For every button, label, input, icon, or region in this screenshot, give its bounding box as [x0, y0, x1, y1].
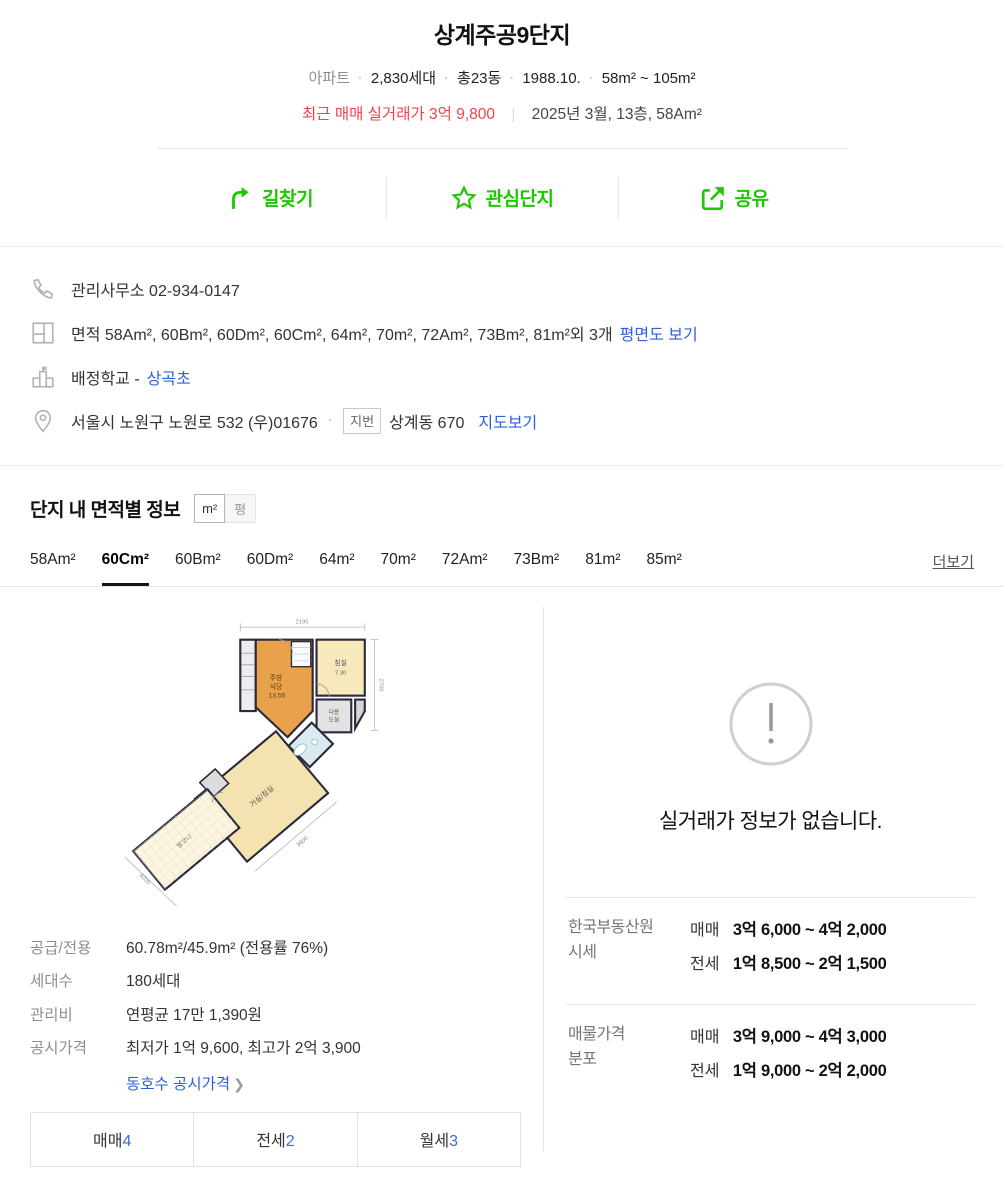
svg-text:주방 식당 13.5: 주방 식당 13.55 [268, 673, 285, 699]
detail-label: 관리비 [30, 1005, 126, 1027]
detail-label: 공시가격 [30, 1038, 126, 1060]
price-row: 매매 3억 9,000 ~ 4억 3,000 [690, 1023, 886, 1047]
no-deal-empty-state: 실거래가 정보가 없습니다. [566, 607, 975, 835]
detail-row: 공급/전용 60.78m²/45.9m² (전용률 76%) [30, 938, 521, 960]
svg-text:3600: 3600 [295, 836, 309, 849]
complex-info-box: 관리사무소 02-934-0147 면적 58Am², 60Bm², 60Dm²… [0, 247, 1004, 466]
unit-price-link[interactable]: 동호수 공시가격 [126, 1076, 230, 1093]
jibun-address: 상계동 670 [389, 409, 464, 433]
section-title: 단지 내 면적별 정보 [30, 495, 180, 522]
area-tab[interactable]: 70m² [381, 547, 416, 586]
listing-button-매매[interactable]: 매매4 [30, 1112, 194, 1167]
area-detail-table: 공급/전용 60.78m²/45.9m² (전용률 76%) 세대수 180세대… [30, 938, 521, 1094]
separator-dot: · [358, 70, 363, 87]
action-bar: 길찾기 관심단지 공유 [0, 149, 1004, 247]
recent-deal-line: 최근 매매 실거래가 3억 9,800 | 2025년 3월, 13층, 58A… [0, 102, 1004, 124]
no-deal-message: 실거래가 정보가 없습니다. [566, 805, 975, 835]
favorite-complex-button[interactable]: 관심단지 [387, 184, 618, 211]
phone-icon [30, 276, 56, 302]
price-range: 3억 6,000 ~ 4억 2,000 [733, 921, 887, 939]
share-button[interactable]: 공유 [619, 184, 850, 211]
info-row-office: 관리사무소 02-934-0147 [30, 267, 974, 311]
floorplan-icon [30, 320, 56, 346]
separator-bar: | [511, 106, 515, 123]
price-section-label: 한국부동산원시세 [568, 916, 690, 984]
school-icon [30, 364, 56, 390]
info-row-school: 배정학교 - 상곡초 [30, 355, 974, 399]
price-type: 매매 [690, 1029, 719, 1046]
directions-button[interactable]: 길찾기 [155, 184, 386, 211]
complex-meta: 아파트·2,830세대·총23동·1988.10.·58m² ~ 105m² [0, 67, 1004, 88]
price-row: 전세 1억 9,000 ~ 2억 2,000 [690, 1057, 886, 1081]
road-address: 서울시 노원구 노원로 532 (우)01676 [71, 409, 318, 433]
recent-deal-detail: 2025년 3월, 13층, 58Am² [532, 106, 702, 123]
price-type: 전세 [690, 956, 719, 973]
listing-button-월세[interactable]: 월세3 [357, 1112, 521, 1167]
svg-text:도실: 도실 [328, 716, 339, 724]
area-tabs-bar: 58Am²60Cm²60Bm²60Dm²64m²70m²72Am²73Bm²81… [0, 547, 1004, 587]
office-text: 관리사무소 02-934-0147 [71, 277, 240, 301]
svg-text:7.30: 7.30 [335, 670, 346, 676]
price-range: 1억 8,500 ~ 2억 1,500 [733, 955, 887, 973]
school-link[interactable]: 상곡초 [147, 365, 191, 389]
price-range: 3억 9,000 ~ 4억 3,000 [733, 1028, 887, 1046]
detail-row: 세대수 180세대 [30, 971, 521, 993]
price-row: 매매 3억 6,000 ~ 4억 2,000 [690, 916, 886, 940]
area-tab[interactable]: 81m² [585, 547, 620, 586]
area-tab[interactable]: 72Am² [442, 547, 488, 586]
price-row: 전세 1억 8,500 ~ 2억 1,500 [690, 950, 886, 974]
detail-label: 세대수 [30, 971, 126, 993]
left-column: 2190 2700 3600 4200 [0, 587, 543, 1167]
area-tab[interactable]: 85m² [647, 547, 682, 586]
location-pin-icon [30, 408, 56, 434]
unit-pyeong-button[interactable]: 평 [225, 494, 256, 523]
share-label: 공유 [735, 184, 769, 211]
detail-row: 공시가격 최저가 1억 9,600, 최고가 2억 3,900 [30, 1038, 521, 1060]
separator-dot: · [509, 70, 514, 87]
detail-label: 공급/전용 [30, 938, 126, 960]
detail-value: 연평균 17만 1,390원 [126, 1005, 262, 1027]
directions-label: 길찾기 [262, 184, 313, 211]
exclamation-circle-icon [728, 681, 814, 767]
chevron-right-icon: ❯ [233, 1076, 245, 1092]
detail-row: 관리비 연평균 17만 1,390원 [30, 1005, 521, 1027]
favorite-label: 관심단지 [486, 184, 554, 211]
area-tab[interactable]: 60Dm² [247, 547, 294, 586]
star-icon [451, 185, 477, 211]
separator-dot: · [444, 70, 449, 87]
share-icon [700, 185, 726, 211]
area-detail-content: 2190 2700 3600 4200 [0, 587, 1004, 1167]
price-type: 매매 [690, 922, 719, 939]
area-tab[interactable]: 73Bm² [514, 547, 560, 586]
listing-button-전세[interactable]: 전세2 [193, 1112, 357, 1167]
svg-text:4200: 4200 [137, 873, 151, 886]
meta-item: 2,830세대 [371, 70, 436, 87]
listing-buttons: 매매4전세2월세3 [30, 1112, 521, 1167]
unit-toggle: m² 평 [194, 494, 256, 523]
meta-item: 1988.10. [522, 70, 580, 87]
meta-item: 58m² ~ 105m² [602, 70, 696, 87]
page-title: 상계주공9단지 [0, 16, 1004, 50]
directions-icon [227, 185, 253, 211]
svg-text:2700: 2700 [377, 679, 383, 692]
recent-deal-price: 최근 매매 실거래가 3억 9,800 [302, 106, 495, 123]
area-tab[interactable]: 60Bm² [175, 547, 221, 586]
svg-text:2190: 2190 [295, 619, 308, 625]
school-text: 배정학교 - [71, 365, 140, 389]
price-range: 1억 9,000 ~ 2억 2,000 [733, 1062, 887, 1080]
unit-m2-button[interactable]: m² [194, 494, 225, 523]
detail-value: 최저가 1억 9,600, 최고가 2억 3,900 [126, 1038, 361, 1060]
area-tab[interactable]: 58Am² [30, 547, 76, 586]
area-tab[interactable]: 64m² [319, 547, 354, 586]
area-tab[interactable]: 60Cm² [102, 547, 149, 586]
svg-text:다용: 다용 [328, 708, 339, 716]
price-section: 한국부동산원시세 매매 3억 6,000 ~ 4억 2,000 전세 1억 8,… [566, 897, 975, 1004]
info-row-area: 면적 58Am², 60Bm², 60Dm², 60Cm², 64m², 70m… [30, 311, 974, 355]
price-section-label: 매물가격분포 [568, 1023, 690, 1091]
map-view-link[interactable]: 지도보기 [478, 409, 537, 433]
section-header: 단지 내 면적별 정보 m² 평 [30, 494, 974, 523]
jibun-badge: 지번 [343, 408, 381, 434]
more-link[interactable]: 더보기 [933, 551, 974, 586]
meta-item: 아파트 [308, 70, 349, 87]
area-list-text: 면적 58Am², 60Bm², 60Dm², 60Cm², 64m², 70m… [71, 321, 613, 345]
separator-dot: · [328, 412, 333, 430]
price-type: 전세 [690, 1063, 719, 1080]
floorplan-image: 2190 2700 3600 4200 [106, 603, 446, 912]
info-row-address: 서울시 노원구 노원로 532 (우)01676 · 지번 상계동 670 지도… [30, 399, 974, 443]
price-section: 매물가격분포 매매 3억 9,000 ~ 4억 3,000 전세 1억 9,00… [566, 1004, 975, 1111]
detail-value: 60.78m²/45.9m² (전용률 76%) [126, 938, 328, 960]
separator-dot: · [589, 70, 594, 87]
meta-item: 총23동 [457, 70, 501, 87]
complex-header: 상계주공9단지 아파트·2,830세대·총23동·1988.10.·58m² ~… [0, 0, 1004, 149]
right-column: 실거래가 정보가 없습니다. 한국부동산원시세 매매 3억 6,000 ~ 4억… [543, 607, 1004, 1151]
floorplan-view-link[interactable]: 평면도 보기 [620, 321, 698, 345]
svg-text:침실: 침실 [334, 658, 346, 667]
detail-value: 180세대 [126, 971, 180, 993]
